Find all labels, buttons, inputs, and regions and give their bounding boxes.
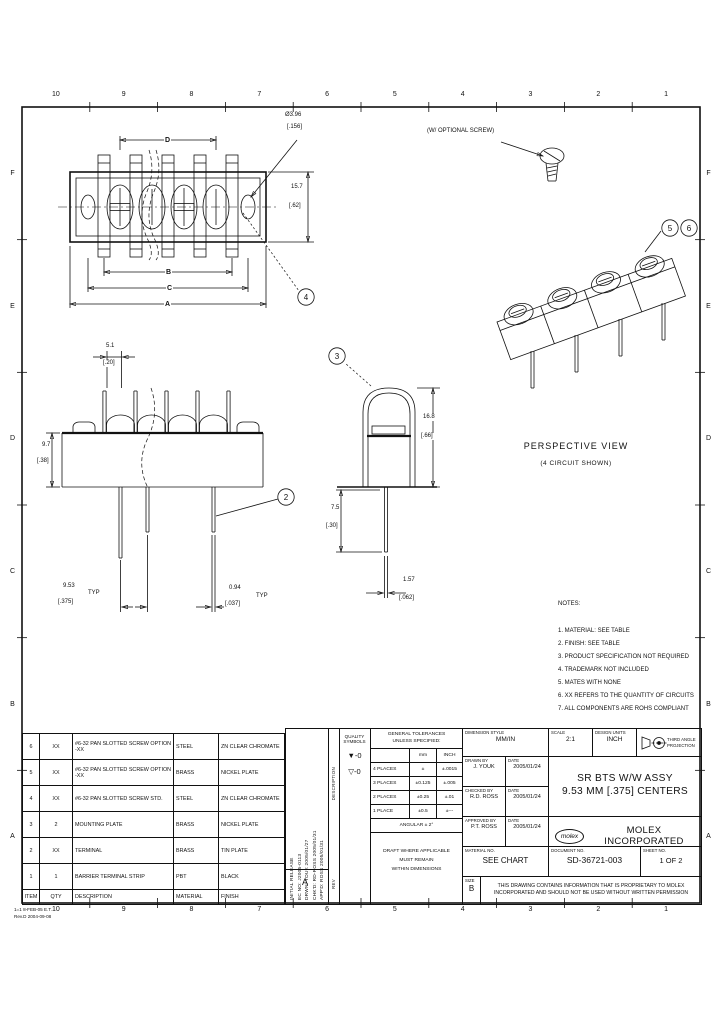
cell-description: #6-32 PAN SLOTTED SCREW OPTION -XX (73, 734, 174, 759)
quality-symbol-list: ▼-0▽-0 (339, 751, 370, 776)
cell-finish: NICKEL PLATE (219, 760, 284, 785)
cell-qty: XX (40, 760, 73, 785)
revision-line: CHK'D: RD-ROSS 2005/01/31 (312, 725, 320, 900)
note-item: 4. TRADEMARK NOT INCLUDED (558, 664, 694, 677)
cell-material: PBT (174, 864, 219, 889)
screw-dia-mm: Ø3.96 (284, 112, 302, 119)
sheet-number-value: 1 OF 2 (641, 856, 701, 865)
zone-letter: A (702, 770, 715, 903)
cell-item: 4 (23, 786, 40, 811)
zone-number: 4 (429, 906, 497, 918)
fv-height-mm: 9.7 (41, 442, 51, 449)
tolerance-mm: ±0.5 (410, 805, 437, 818)
note-item: 7. ALL COMPONENTS ARE ROHS COMPLIANT (558, 703, 694, 716)
plot-stamp: 1=1 8-FEB-05 E.T. Rev.D 2004-09-08 (14, 906, 52, 920)
header-qty: QTY (40, 890, 73, 904)
drawing-title-line-2: 9.53 MM [.375] CENTERS (549, 785, 701, 798)
approved-by-label: APPROVED BY (463, 817, 505, 823)
material-label: MATERIAL NO. (463, 847, 548, 853)
draft-note-2: MUST REMAIN (371, 856, 462, 865)
scale-label: SCALE (549, 729, 592, 735)
top-view-drawing (58, 136, 314, 308)
title-block: INITIAL RELEASEEC NO: J2005-0113DRWN: YO… (285, 728, 702, 905)
item-balloon-3: 3 (329, 348, 346, 365)
zone-number: 8 (158, 906, 226, 918)
zone-letter: E (702, 240, 715, 373)
tolerance-header-blank (371, 749, 410, 762)
approved-by-cell: APPROVED BY P.T. ROSS DATE 2005/01/24 (463, 817, 549, 847)
tolerance-header-row: mm INCH (371, 748, 462, 762)
table-row: 6 XX #6-32 PAN SLOTTED SCREW OPTION -XX … (23, 734, 284, 760)
zone-letter: E (6, 240, 19, 373)
note-item: 3. PRODUCT SPECIFICATION NOT REQUIRED (558, 651, 694, 664)
cell-description: #6-32 PAN SLOTTED SCREW STD. (73, 786, 174, 811)
table-row: 4 XX #6-32 PAN SLOTTED SCREW STD. STEEL … (23, 786, 284, 812)
cell-qty: 2 (40, 812, 73, 837)
note-item: 1. MATERIAL: SEE TABLE (558, 625, 694, 638)
company-cell: molex MOLEX INCORPORATED (549, 817, 701, 847)
proprietary-notice-line-2: INCORPORATED AND SHOULD NOT BE USED WITH… (481, 890, 701, 897)
tv-height-in: [.62] (288, 203, 302, 210)
document-number-label: DOCUMENT NO. (549, 847, 640, 853)
dim-c-label: C (166, 285, 173, 293)
cell-qty: XX (40, 838, 73, 863)
cell-description: #6-32 PAN SLOTTED SCREW OPTION -XX (73, 760, 174, 785)
cell-finish: TIN PLATE (219, 838, 284, 863)
header-material: MATERIAL (174, 890, 219, 904)
cell-description: BARRIER TERMINAL STRIP (73, 864, 174, 889)
checked-date: DATE 2005/01/24 (506, 787, 548, 816)
parts-list-table: 6 XX #6-32 PAN SLOTTED SCREW OPTION -XX … (22, 733, 285, 905)
zone-number: 10 (22, 91, 90, 103)
zone-number: 7 (225, 91, 293, 103)
proprietary-notice-line-1: THIS DRAWING CONTAINS INFORMATION THAT I… (481, 883, 701, 890)
zone-letters-left: FEDCBA (6, 107, 19, 903)
tolerance-title-2: UNLESS SPECIFIED: (371, 739, 462, 746)
fv-height-in: [.38] (36, 458, 50, 465)
tolerance-places: 3 PLACES (371, 777, 410, 790)
checked-by-cell: CHECKED BY R.D. ROSS DATE 2005/01/24 (463, 787, 549, 817)
zone-number: 2 (564, 906, 632, 918)
tolerance-rows: 4 PLACES ± ±.0015 3 PLACES ±0.125 ±.005 … (371, 762, 462, 819)
zone-number: 3 (497, 906, 565, 918)
item-balloon-4: 4 (298, 289, 315, 306)
scale-value: 2:1 (549, 736, 592, 743)
sheet-number-label: SHEET NO. (641, 847, 701, 853)
zone-number: 1 (632, 906, 700, 918)
fv-tab-mm: 0.94 (228, 585, 242, 592)
zone-letter: D (702, 372, 715, 505)
tolerance-inch: ±--- (437, 805, 462, 818)
perspective-view-drawing (494, 142, 698, 388)
cell-qty: XX (40, 734, 73, 759)
plot-stamp-line-2: Rev.D 2004-09-08 (14, 913, 52, 920)
document-number-cell: DOCUMENT NO. SD-36721-003 (549, 847, 641, 877)
cell-material: STEEL (174, 786, 219, 811)
zone-letter: D (6, 372, 19, 505)
quality-title-2: SYMBOLS (339, 739, 370, 744)
zone-letter: A (6, 770, 19, 903)
cell-qty: XX (40, 786, 73, 811)
revision-letter: A (302, 877, 308, 887)
zone-number: 9 (90, 91, 158, 103)
revision-strip: INITIAL RELEASEEC NO: J2005-0113DRWN: YO… (286, 729, 340, 904)
header-description: DESCRIPTION (73, 890, 174, 904)
material-cell: MATERIAL NO. SEE CHART (463, 847, 549, 877)
table-row: 2 XX TERMINAL BRASS TIN PLATE (23, 838, 284, 864)
material-value: SEE CHART (463, 856, 548, 865)
perspective-view-label: PERSPECTIVE VIEW (508, 441, 644, 451)
parts-rows: 6 XX #6-32 PAN SLOTTED SCREW OPTION -XX … (23, 734, 284, 890)
dim-b-label: B (165, 269, 172, 277)
fv-pitch-mm: 9.53 (62, 583, 76, 590)
cell-item: 1 (23, 864, 40, 889)
fv-pitch-in: [.375] (57, 599, 74, 606)
approved-date-value: 2005/01/24 (506, 824, 548, 830)
cell-item: 6 (23, 734, 40, 759)
note-item: 2. FINISH: SEE TABLE (558, 638, 694, 651)
zone-number: 4 (429, 91, 497, 103)
draft-note: DRAFT WHERE APPLICABLE MUST REMAIN WITHI… (371, 847, 462, 874)
revision-line: EC NO: J2005-0113 (297, 725, 305, 900)
tolerance-places: 1 PLACE (371, 805, 410, 818)
header-item: ITEM (23, 890, 40, 904)
cell-item: 5 (23, 760, 40, 785)
tv-height-mm: 15.7 (290, 184, 304, 191)
approved-by-value: P.T. ROSS (463, 824, 505, 830)
size-cell: SIZE B (463, 877, 481, 904)
note-item: 6. XX REFERS TO THE QUANTITY OF CIRCUITS (558, 690, 694, 703)
dim-a-label: A (164, 301, 171, 309)
checked-by-label: CHECKED BY (463, 787, 505, 793)
item-balloon-5: 5 (662, 220, 679, 237)
fv-pitch-typ: TYP (87, 590, 101, 597)
zone-numbers-top: 10987654321 (22, 91, 700, 103)
notes-list: 1. MATERIAL: SEE TABLE2. FINISH: SEE TAB… (558, 625, 694, 716)
design-units-cell: DESIGN UNITS INCH (593, 729, 637, 757)
cell-finish: NICKEL PLATE (219, 812, 284, 837)
tolerance-row: 2 PLACES ±0.25 ±.01 (371, 790, 462, 804)
front-view-drawing (46, 351, 294, 612)
zone-numbers-bottom: 10987654321 (22, 906, 700, 918)
drawn-date-label: DATE (506, 757, 548, 763)
table-row: 3 2 MOUNTING PLATE BRASS NICKEL PLATE (23, 812, 284, 838)
sv-pin-mm: 7.5 (330, 505, 340, 512)
header-finish: FINISH (219, 890, 284, 904)
size-value: B (463, 884, 480, 893)
cell-item: 2 (23, 838, 40, 863)
tolerance-block: GENERAL TOLERANCES UNLESS SPECIFIED: mm … (371, 729, 463, 904)
drawn-by-cell: DRAWN BY J. YOUK DATE 2005/01/24 (463, 757, 549, 787)
drawn-date: DATE 2005/01/24 (506, 757, 548, 786)
dimension-style-label: DIMENSION STYLE (463, 729, 548, 735)
company-name: MOLEX INCORPORATED (587, 825, 701, 847)
draft-note-1: DRAFT WHERE APPLICABLE (371, 847, 462, 856)
tolerance-mm: ± (410, 763, 437, 776)
notes-block: NOTES: 1. MATERIAL: SEE TABLE2. FINISH: … (558, 598, 694, 716)
perspective-view-sublabel: (4 CIRCUIT SHOWN) (508, 460, 644, 467)
sv-width-in: [.062] (398, 595, 415, 602)
sheet-number-cell: SHEET NO. 1 OF 2 (641, 847, 701, 877)
document-number-value: SD-36721-003 (549, 855, 640, 865)
tolerance-inch: ±.0015 (437, 763, 462, 776)
cell-material: STEEL (174, 734, 219, 759)
zone-number: 1 (632, 91, 700, 103)
revision-history-text: INITIAL RELEASEEC NO: J2005-0113DRWN: YO… (286, 725, 331, 904)
sv-height-in: [.66] (420, 433, 434, 440)
zone-number: 5 (361, 906, 429, 918)
cell-material: BRASS (174, 838, 219, 863)
revision-line: DRWN: YOUK 2005/01/27 (304, 725, 312, 900)
dim-d-label: D (164, 137, 171, 145)
checked-date-value: 2005/01/24 (506, 794, 548, 800)
notes-heading: NOTES: (558, 598, 694, 611)
design-units-value: INCH (593, 736, 636, 743)
draft-note-3: WITHIN DIMENSIONS (371, 865, 462, 874)
angular-tolerance: ANGULAR ± 2° (371, 819, 462, 833)
quality-symbol-icon: ▽-0 (339, 767, 370, 776)
cell-qty: 1 (40, 864, 73, 889)
drawing-title-cell: SR BTS W/W ASSY 9.53 MM [.375] CENTERS (549, 757, 701, 817)
tolerance-places: 2 PLACES (371, 791, 410, 804)
zone-letter: C (6, 505, 19, 638)
fv-tab-typ: TYP (255, 593, 269, 600)
checked-by: CHECKED BY R.D. ROSS (463, 787, 506, 816)
fv-tab-in: [.037] (224, 601, 241, 608)
fv-slot-mm: 5.1 (105, 343, 115, 350)
tolerance-inch: ±.01 (437, 791, 462, 804)
cell-finish: ZN CLEAR CHROMATE (219, 786, 284, 811)
tolerance-mm: ±0.25 (410, 791, 437, 804)
tolerance-header-mm: mm (410, 749, 437, 762)
revision-rev-label: REV (331, 879, 336, 889)
size-label: SIZE (463, 877, 480, 883)
title-fields: DIMENSION STYLE MM/IN SCALE 2:1 DESIGN U… (463, 729, 701, 904)
side-view-drawing (329, 348, 440, 598)
zone-number: 2 (564, 91, 632, 103)
sv-pin-in: [.30] (325, 523, 339, 530)
drawing-title-line-1: SR BTS W/W ASSY (549, 772, 701, 785)
projection-text: THIRD ANGLE PROJECTION (667, 737, 696, 748)
zone-number: 6 (293, 906, 361, 918)
dimension-style-value: MM/IN (463, 736, 548, 743)
fv-slot-in: [.20] (102, 360, 116, 367)
parts-header-row: ITEM QTY DESCRIPTION MATERIAL FINISH (23, 890, 284, 904)
cell-item: 3 (23, 812, 40, 837)
tolerance-mm: ±0.125 (410, 777, 437, 790)
zone-number: 9 (90, 906, 158, 918)
zone-number: 5 (361, 91, 429, 103)
cell-description: TERMINAL (73, 838, 174, 863)
zone-letter: F (702, 107, 715, 240)
screw-dia-in: [.156] (286, 124, 303, 131)
proprietary-notice: THIS DRAWING CONTAINS INFORMATION THAT I… (481, 877, 701, 904)
drawn-by-value: J. YOUK (463, 764, 505, 770)
zone-letters-right: FEDCBA (702, 107, 715, 903)
sv-height-mm: 16.8 (422, 414, 436, 421)
revision-description-label: DESCRIPTION (331, 767, 336, 800)
tolerance-places: 4 PLACES (371, 763, 410, 776)
approved-by: APPROVED BY P.T. ROSS (463, 817, 506, 846)
plot-stamp-line-1: 1=1 8-FEB-05 E.T. (14, 906, 52, 913)
drawn-date-value: 2005/01/24 (506, 764, 548, 770)
quality-symbol-icon: ▼-0 (339, 751, 370, 760)
projection-line-2: PROJECTION (667, 743, 696, 749)
sv-width-mm: 1.57 (402, 577, 416, 584)
revision-divider (286, 869, 328, 870)
third-angle-projection-icon (639, 732, 667, 754)
checked-by-value: R.D. ROSS (463, 794, 505, 800)
optional-screw-callout: (W/ OPTIONAL SCREW) (427, 128, 494, 134)
cell-finish: ZN CLEAR CHROMATE (219, 734, 284, 759)
approved-date: DATE 2005/01/24 (506, 817, 548, 846)
dimension-style-cell: DIMENSION STYLE MM/IN (463, 729, 549, 757)
revision-line: INITIAL RELEASE (289, 725, 297, 900)
zone-letter: F (6, 107, 19, 240)
molex-logo: molex (555, 829, 584, 844)
tolerance-row: 3 PLACES ±0.125 ±.005 (371, 776, 462, 790)
drawn-by-label: DRAWN BY (463, 757, 505, 763)
table-row: 1 1 BARRIER TERMINAL STRIP PBT BLACK (23, 864, 284, 890)
cell-finish: BLACK (219, 864, 284, 889)
design-units-label: DESIGN UNITS (593, 729, 636, 735)
cell-material: BRASS (174, 760, 219, 785)
checked-date-label: DATE (506, 787, 548, 793)
zone-number: 6 (293, 91, 361, 103)
tolerance-inch: ±.005 (437, 777, 462, 790)
item-balloon-2: 2 (278, 489, 295, 506)
note-item: 5. MATES WITH NONE (558, 677, 694, 690)
zone-number: 8 (158, 91, 226, 103)
drawn-by: DRAWN BY J. YOUK (463, 757, 506, 786)
cell-material: BRASS (174, 812, 219, 837)
table-row: 5 XX #6-32 PAN SLOTTED SCREW OPTION -XX … (23, 760, 284, 786)
revision-line: APP'D: ROSS 2005/01/31 (319, 725, 327, 900)
tolerance-row: 4 PLACES ± ±.0015 (371, 762, 462, 776)
drawing-sheet: 10987654321 10987654321 FEDCBA FEDCBA D … (0, 0, 720, 1012)
approved-date-label: DATE (506, 817, 548, 823)
projection-cell: THIRD ANGLE PROJECTION (637, 729, 701, 757)
zone-number: 3 (497, 91, 565, 103)
zone-number: 7 (225, 906, 293, 918)
scale-cell: SCALE 2:1 (549, 729, 593, 757)
item-balloon-6: 6 (681, 220, 698, 237)
quality-symbols-box: QUALITY SYMBOLS ▼-0▽-0 (339, 729, 371, 904)
tolerance-row: 1 PLACE ±0.5 ±--- (371, 804, 462, 818)
zone-letter: C (702, 505, 715, 638)
projection-line-1: THIRD ANGLE (667, 737, 696, 743)
zone-letter: B (6, 638, 19, 771)
tolerance-header-inch: INCH (437, 749, 462, 762)
cell-description: MOUNTING PLATE (73, 812, 174, 837)
zone-letter: B (702, 638, 715, 771)
